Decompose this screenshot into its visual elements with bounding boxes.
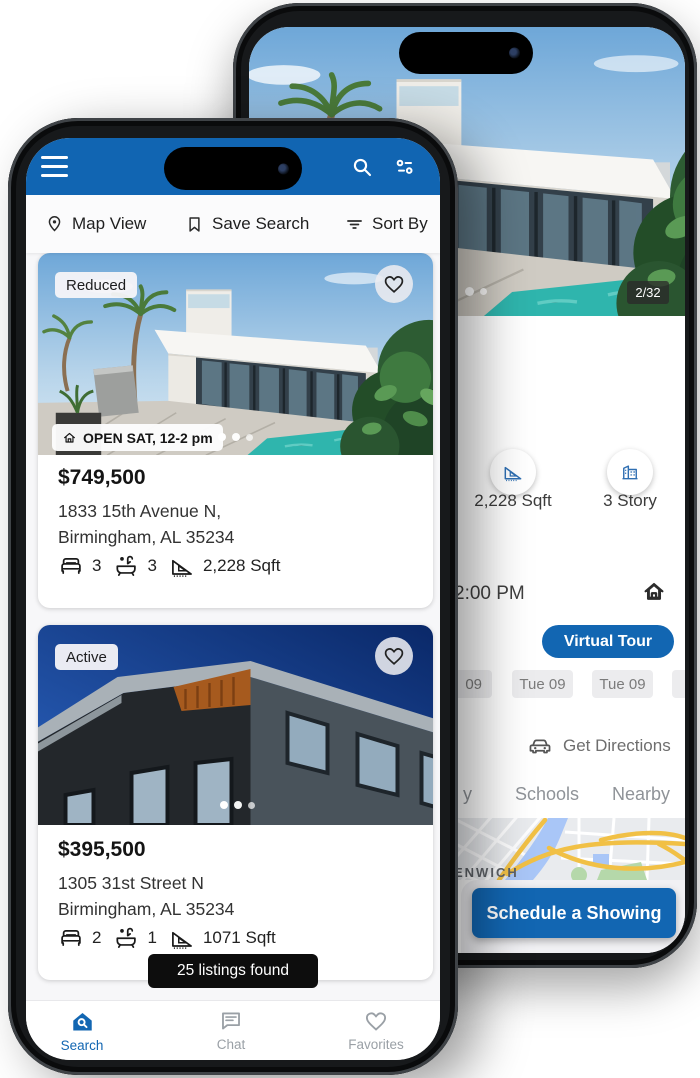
home-search-icon bbox=[69, 1008, 96, 1035]
nav-favorites[interactable]: Favorites bbox=[331, 1008, 421, 1052]
listing-card[interactable]: Reduced OPEN SAT, 12-2 pm $749,500 1833 … bbox=[38, 253, 433, 608]
schedule-showing-button[interactable]: Schedule a Showing bbox=[472, 888, 676, 938]
house-icon bbox=[62, 430, 77, 445]
notch bbox=[399, 32, 533, 74]
baths-stat: 3 bbox=[113, 553, 156, 579]
front-camera bbox=[509, 48, 520, 59]
beds-count: 2 bbox=[92, 928, 101, 948]
bath-icon bbox=[113, 925, 139, 951]
open-house-pill: OPEN SAT, 12-2 pm bbox=[52, 424, 223, 451]
building-icon bbox=[620, 462, 640, 482]
status-badge: Reduced bbox=[55, 272, 137, 298]
heart-icon bbox=[382, 644, 406, 668]
listing-stats: 2 1 1071 Sqft bbox=[58, 925, 276, 951]
sqft-stat: 1071 Sqft bbox=[169, 925, 276, 951]
open-house-time: 2:00 PM bbox=[454, 583, 525, 605]
photo-carousel-dots[interactable] bbox=[465, 287, 487, 296]
stage: 2/32 2,228 Sqft 3 Story 2:00 PM Virtual … bbox=[0, 0, 700, 1078]
save-search-label: Save Search bbox=[212, 214, 309, 234]
story-stat-label: 3 Story bbox=[560, 491, 685, 511]
sqft-stat: 2,228 Sqft bbox=[169, 553, 281, 579]
date-chip[interactable]: Tue 09 bbox=[512, 670, 573, 698]
tab-schools[interactable]: Schools bbox=[515, 784, 579, 805]
address-line2: Birmingham, AL 35234 bbox=[58, 524, 234, 550]
date-chip-clipped[interactable] bbox=[672, 670, 685, 698]
listing-card[interactable]: Active $395,500 1305 31st Street N Birmi… bbox=[38, 625, 433, 980]
car-icon bbox=[527, 733, 553, 759]
beds-stat: 2 bbox=[58, 925, 101, 951]
nav-chat[interactable]: Chat bbox=[186, 1008, 276, 1052]
photo-counter: 2/32 bbox=[627, 281, 669, 304]
bath-icon bbox=[113, 553, 139, 579]
nav-search[interactable]: Search bbox=[37, 1008, 127, 1053]
beds-count: 3 bbox=[92, 556, 101, 576]
listing-address: 1833 15th Avenue N, Birmingham, AL 35234 bbox=[58, 498, 234, 550]
ruler-icon bbox=[502, 461, 524, 483]
address-line1: 1305 31st Street N bbox=[58, 870, 234, 896]
save-search-button[interactable]: Save Search bbox=[184, 195, 309, 253]
listing-price: $395,500 bbox=[58, 838, 146, 862]
virtual-tour-button[interactable]: Virtual Tour bbox=[542, 625, 674, 658]
sqft-value: 1071 Sqft bbox=[203, 928, 276, 948]
search-icon[interactable] bbox=[350, 155, 374, 179]
sqft-value: 2,228 Sqft bbox=[203, 556, 281, 576]
carousel-dots[interactable] bbox=[220, 801, 255, 809]
sort-by-label: Sort By bbox=[372, 214, 428, 234]
nav-favorites-label: Favorites bbox=[348, 1037, 404, 1052]
open-house-label: OPEN SAT, 12-2 pm bbox=[83, 430, 213, 446]
bottom-navigation: Search Chat Favorites bbox=[26, 1000, 440, 1060]
carousel-dots[interactable] bbox=[218, 433, 253, 441]
listing-stats: 3 3 2,228 Sqft bbox=[58, 553, 280, 579]
front-camera bbox=[278, 163, 289, 174]
menu-button[interactable] bbox=[41, 156, 68, 177]
baths-count: 3 bbox=[147, 556, 156, 576]
listing-address: 1305 31st Street N Birmingham, AL 35234 bbox=[58, 870, 234, 922]
address-line2: Birmingham, AL 35234 bbox=[58, 896, 234, 922]
bed-icon bbox=[58, 553, 84, 579]
chat-icon bbox=[218, 1008, 244, 1034]
sort-filter-icon bbox=[344, 214, 365, 235]
tab-clipped-fragment[interactable]: y bbox=[463, 784, 472, 805]
results-count-toast: 25 listings found bbox=[148, 954, 318, 988]
bed-icon bbox=[58, 925, 84, 951]
ruler-icon bbox=[169, 925, 195, 951]
notch bbox=[164, 147, 302, 190]
map-view-label: Map View bbox=[72, 214, 146, 234]
address-line1: 1833 15th Avenue N, bbox=[58, 498, 234, 524]
listing-price: $749,500 bbox=[58, 466, 146, 490]
sort-by-button[interactable]: Sort By bbox=[344, 195, 428, 253]
baths-stat: 1 bbox=[113, 925, 156, 951]
story-stat-icon-circle[interactable] bbox=[607, 449, 653, 495]
open-house-icon bbox=[641, 578, 667, 609]
baths-count: 1 bbox=[147, 928, 156, 948]
favorite-button[interactable] bbox=[375, 265, 413, 303]
filter-settings-icon[interactable] bbox=[393, 155, 417, 179]
date-chip[interactable]: Tue 09 bbox=[592, 670, 653, 698]
get-directions-button[interactable]: Get Directions bbox=[527, 733, 671, 759]
search-screen: Map View Save Search Sort By Reduced bbox=[26, 138, 440, 1060]
bookmark-icon bbox=[184, 214, 205, 235]
results-toolbar: Map View Save Search Sort By bbox=[26, 195, 440, 253]
map-pin-icon bbox=[44, 214, 65, 235]
heart-icon bbox=[363, 1008, 389, 1034]
favorite-button[interactable] bbox=[375, 637, 413, 675]
ruler-icon bbox=[169, 553, 195, 579]
heart-icon bbox=[382, 272, 406, 296]
nav-chat-label: Chat bbox=[217, 1037, 246, 1052]
beds-stat: 3 bbox=[58, 553, 101, 579]
sqft-stat-icon-circle[interactable] bbox=[490, 449, 536, 495]
get-directions-label: Get Directions bbox=[563, 736, 671, 756]
map-view-button[interactable]: Map View bbox=[44, 195, 146, 253]
status-badge: Active bbox=[55, 644, 118, 670]
nav-search-label: Search bbox=[61, 1038, 104, 1053]
phone-search: Map View Save Search Sort By Reduced bbox=[8, 118, 458, 1075]
tab-nearby[interactable]: Nearby bbox=[612, 784, 670, 805]
